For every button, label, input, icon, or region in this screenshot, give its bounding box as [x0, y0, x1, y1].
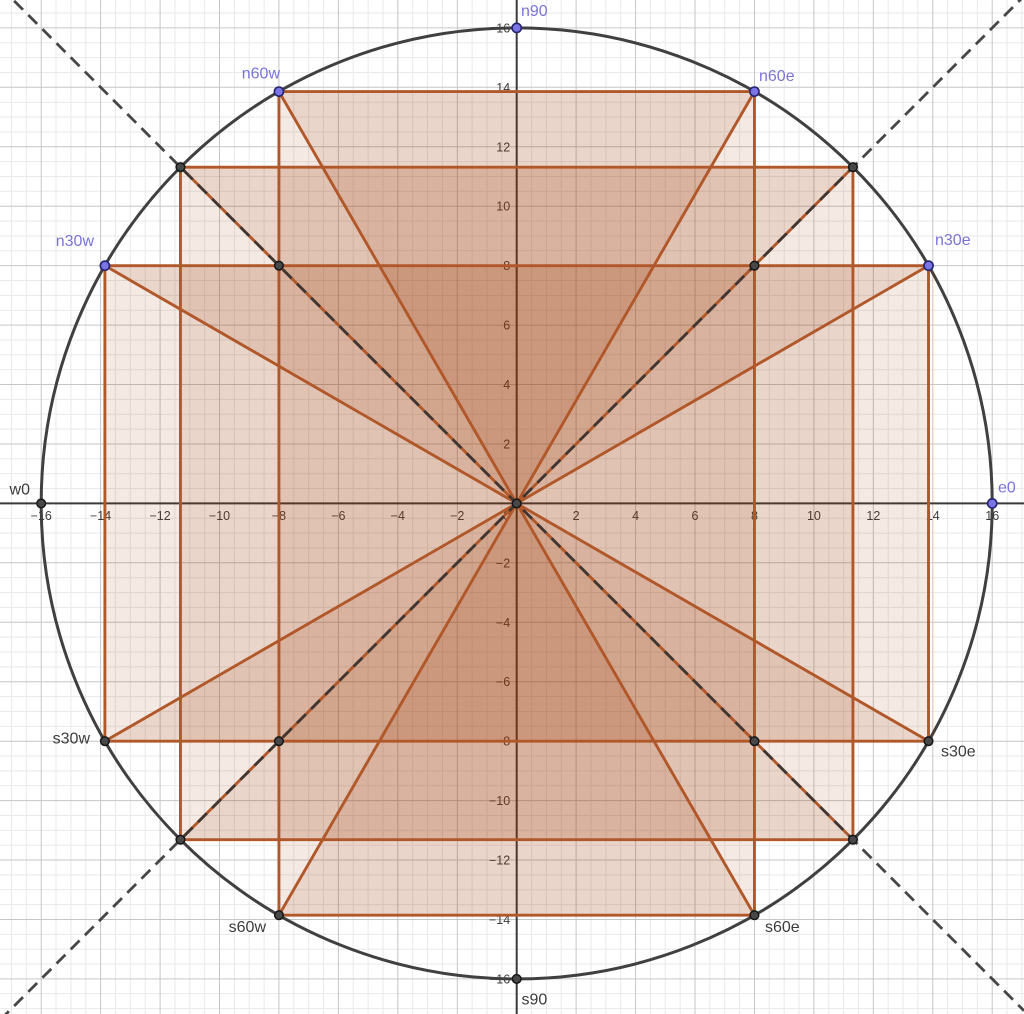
svg-text:n90: n90 — [521, 3, 548, 20]
svg-text:s30w: s30w — [53, 731, 91, 748]
svg-text:s60e: s60e — [765, 919, 800, 936]
svg-text:n30w: n30w — [56, 233, 95, 250]
svg-text:n60w: n60w — [242, 66, 281, 83]
svg-text:s90: s90 — [522, 992, 548, 1009]
svg-text:e0: e0 — [998, 480, 1016, 497]
svg-text:n60e: n60e — [759, 68, 795, 85]
svg-text:s30e: s30e — [941, 744, 976, 761]
svg-text:n30e: n30e — [935, 232, 971, 249]
svg-text:w0: w0 — [9, 482, 31, 499]
svg-text:s60w: s60w — [229, 919, 267, 936]
